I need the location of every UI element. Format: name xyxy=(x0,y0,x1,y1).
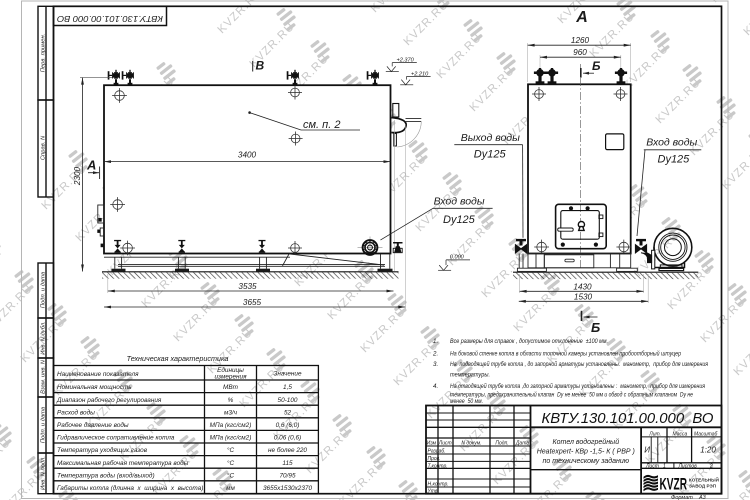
svg-text:Вход воды: Вход воды xyxy=(434,196,485,208)
svg-text:3655: 3655 xyxy=(243,298,262,307)
svg-text:Дата: Дата xyxy=(515,440,529,446)
svg-text:Температура уходящих газов: Температура уходящих газов xyxy=(57,446,148,454)
svg-text:Утв.: Утв. xyxy=(428,489,439,495)
svg-text:Максимальная рабочая температу: Максимальная рабочая температура воды xyxy=(57,459,189,467)
svg-text:0,06 (0,6): 0,06 (0,6) xyxy=(274,435,301,442)
svg-text:Выход воды: Выход воды xyxy=(461,132,520,144)
svg-text:Т.контр.: Т.контр. xyxy=(428,463,448,469)
svg-text:3655х1530х2370: 3655х1530х2370 xyxy=(263,485,312,492)
svg-text:1530: 1530 xyxy=(574,293,593,302)
svg-text:Гидравлическое сопративление к: Гидравлическое сопративление котла xyxy=(57,434,175,442)
svg-text:Рабочее давление воды: Рабочее давление воды xyxy=(57,421,129,429)
svg-text:Вход воды: Вход воды xyxy=(646,136,697,148)
svg-text:3.: 3. xyxy=(433,361,438,368)
svg-text:На отводящей трубе котла ,до з: На отводящей трубе котла ,до запорной ар… xyxy=(450,383,706,390)
svg-text:%: % xyxy=(228,397,234,404)
svg-text:Heatexpert- КВр -1,5- К ( РВР: Heatexpert- КВр -1,5- К ( РВР ) xyxy=(537,449,635,456)
svg-text:температуры.: температуры. xyxy=(450,372,490,379)
svg-text:не более 220: не более 220 xyxy=(268,446,307,454)
svg-text:N докум.: N докум. xyxy=(461,440,481,446)
svg-text:3400: 3400 xyxy=(238,151,257,160)
svg-text:Наименование показателя: Наименование показателя xyxy=(57,371,139,378)
svg-text:115: 115 xyxy=(282,460,293,467)
svg-text:50-100: 50-100 xyxy=(278,397,298,404)
svg-text:KVZR: KVZR xyxy=(660,475,688,494)
svg-text:Листов: Листов xyxy=(678,464,698,470)
svg-text:На боковой стенке котла в обла: На боковой стенке котла в области топочн… xyxy=(450,350,681,357)
svg-text:Взам. инв. N: Взам. инв. N xyxy=(40,359,46,394)
svg-text:измерения: измерения xyxy=(215,374,248,381)
svg-text:А3: А3 xyxy=(698,495,707,500)
svg-text:Dy125: Dy125 xyxy=(658,154,691,166)
svg-text:1430: 1430 xyxy=(573,282,592,291)
svg-text:Все размеры для справок , допу: Все размеры для справок , допустимое отк… xyxy=(450,338,608,345)
svg-text:Номинальная мощность: Номинальная мощность xyxy=(57,384,132,391)
svg-text:Лист: Лист xyxy=(438,440,452,446)
svg-text:Перв. примен.: Перв. примен. xyxy=(40,34,46,73)
svg-text:1,5: 1,5 xyxy=(283,384,292,391)
svg-text:1260: 1260 xyxy=(571,36,590,45)
svg-text:Расход воды: Расход воды xyxy=(57,408,95,416)
svg-text:Котел водогрейный: Котел водогрейный xyxy=(553,438,620,446)
svg-text:0,6 (6,0): 0,6 (6,0) xyxy=(276,422,300,429)
svg-text:1: 1 xyxy=(663,464,666,470)
svg-text:МПа (кгс/см2): МПа (кгс/см2) xyxy=(210,422,252,429)
svg-text:температуры, предохранительный: температуры, предохранительный клапан Dу… xyxy=(450,391,693,398)
svg-text:Подп. и дата: Подп. и дата xyxy=(40,406,46,443)
svg-text:Диапазон рабочего регулировани: Диапазон рабочего регулирования xyxy=(56,396,162,404)
svg-text:°С: °С xyxy=(227,459,235,467)
svg-text:52: 52 xyxy=(284,409,292,416)
svg-text:°С: °С xyxy=(227,446,235,454)
svg-text:1.: 1. xyxy=(433,338,438,345)
svg-text:2300: 2300 xyxy=(73,166,82,186)
svg-text:Техническая характеристика: Техническая характеристика xyxy=(127,354,229,363)
svg-text:4.: 4. xyxy=(433,383,438,390)
svg-text:менее 50 мм.: менее 50 мм. xyxy=(450,398,483,405)
svg-text:А: А xyxy=(575,9,588,26)
svg-text:Dy125: Dy125 xyxy=(443,214,476,226)
svg-text:И: И xyxy=(644,446,650,455)
svg-text:см. п. 2: см. п. 2 xyxy=(303,119,340,131)
svg-text:КВТУ.130.101.00.000 ВО: КВТУ.130.101.00.000 ВО xyxy=(57,14,163,24)
svg-text:70/95: 70/95 xyxy=(280,472,296,479)
svg-text:Габариты котла (длинна х шир: Габариты котла (длинна х ширина х высота… xyxy=(57,484,203,492)
svg-text:ЗАВОД РЭП: ЗАВОД РЭП xyxy=(689,483,716,488)
svg-text:°С: °С xyxy=(227,471,235,479)
svg-text:В: В xyxy=(256,59,265,73)
svg-text:960: 960 xyxy=(573,48,587,57)
svg-text:Разраб.: Разраб. xyxy=(428,448,446,454)
svg-text:Б: Б xyxy=(591,320,600,335)
svg-text:А: А xyxy=(86,158,96,173)
svg-text:по техническому заданию: по техническому заданию xyxy=(543,457,630,465)
svg-text:Формат: Формат xyxy=(671,495,693,500)
svg-text:Значение: Значение xyxy=(273,371,301,378)
svg-text:Лит.: Лит. xyxy=(648,431,661,437)
svg-text:2.: 2. xyxy=(432,350,438,357)
svg-text:Справ. N: Справ. N xyxy=(40,135,46,160)
svg-text:Лист: Лист xyxy=(645,464,659,470)
svg-text:КОТЕЛЬНЫЙ: КОТЕЛЬНЫЙ xyxy=(689,476,719,483)
svg-text:Dy125: Dy125 xyxy=(474,149,507,161)
svg-text:Изм: Изм xyxy=(427,440,437,446)
svg-text:Подп.: Подп. xyxy=(495,440,508,446)
svg-text:Б: Б xyxy=(592,59,601,73)
svg-text:МПа (кгс/см2): МПа (кгс/см2) xyxy=(210,435,252,442)
svg-text:Подп. и дата: Подп. и дата xyxy=(40,271,46,308)
svg-text:Масштаб: Масштаб xyxy=(694,431,718,437)
svg-text:Инв. N дубл.: Инв. N дубл. xyxy=(40,321,46,355)
svg-text:Инв. N подл.: Инв. N подл. xyxy=(40,456,46,490)
svg-text:1:20: 1:20 xyxy=(700,446,716,455)
svg-text:мм: мм xyxy=(226,485,235,492)
svg-text:3535: 3535 xyxy=(238,282,257,291)
svg-text:Пров.: Пров. xyxy=(428,456,441,462)
svg-text:2: 2 xyxy=(709,464,713,470)
svg-text:Н.контр.: Н.контр. xyxy=(428,482,449,488)
svg-text:м3/ч: м3/ч xyxy=(224,409,238,416)
svg-text:Масса: Масса xyxy=(673,431,688,437)
svg-text:На подводящей трубе котла , д: На подводящей трубе котла , до запорной … xyxy=(450,361,709,368)
svg-text:КВТУ.130.101.00.000 ВО: КВТУ.130.101.00.000 ВО xyxy=(542,411,714,427)
svg-text:Температура воды (вход/выход): Температура воды (вход/выход) xyxy=(57,471,155,479)
svg-text:МВт: МВт xyxy=(223,384,239,391)
